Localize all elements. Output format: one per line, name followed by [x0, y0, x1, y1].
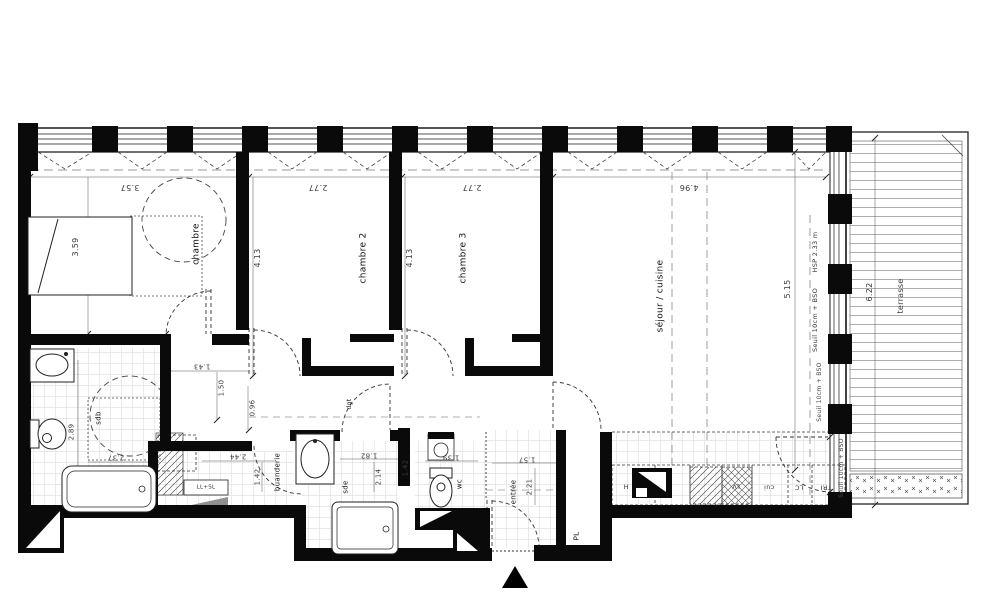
dim-terrasse-length: 6.22 [866, 282, 874, 301]
dim-sejour-width: 4.96 [679, 183, 698, 191]
terrace-deck [846, 132, 968, 504]
note-seuil-a: Seuil 10cm + BSO [812, 288, 819, 352]
dim-entree-height: 2.21 [527, 479, 534, 496]
window-swing-symbols [38, 152, 826, 169]
room-label-sejour-cuisine: séjour / cuisine [657, 260, 666, 333]
dim-buanderie-height: 1.42 [255, 469, 262, 486]
kitchen-label-hotte: H [623, 483, 628, 490]
dim-chambre-width: 3.57 [120, 183, 139, 191]
kitchen-label-cui: cui [764, 484, 774, 491]
room-label-terrasse: terrasse [897, 278, 905, 313]
note-hsp: HSP 2.33 m [812, 232, 819, 273]
room-label-sdb: sdb [96, 411, 103, 424]
note-machine-box: LL+SL [197, 485, 216, 491]
dim-chambre3-width: 2.77 [462, 183, 481, 191]
room-label-wc: wc [457, 479, 464, 489]
dim-wc-height: 1.42 [403, 460, 410, 477]
dim-chambre-height: 3.59 [72, 237, 80, 256]
dim-sde-width: 1.82 [361, 452, 378, 459]
floorplan: chambre chambre 2 chambre 3 séjour / cui… [0, 0, 1000, 609]
dim-sde-height: 2.14 [376, 469, 383, 486]
kitchen-label-lc: LC [795, 484, 804, 491]
note-seuil-b: Seuil 10cm + BSO [817, 362, 823, 422]
room-label-dgt: dgt [347, 399, 353, 410]
entrance-arrow [502, 566, 528, 588]
room-label-chambre: chambre [193, 223, 202, 265]
dim-sejour-height: 5.15 [784, 279, 792, 298]
dim-wc-width: 1.39 [443, 454, 460, 461]
room-label-placard: PL [574, 532, 581, 541]
dim-sdb-width: 2.37 [108, 454, 125, 461]
dim-entree-width: 1.57 [519, 456, 536, 463]
bed [28, 217, 132, 295]
dim-dgt-a: 1.43 [194, 363, 211, 370]
floorplan-linework [0, 0, 1000, 609]
dim-dgt-b: 1.50 [219, 380, 226, 397]
room-label-chambre-2: chambre 2 [360, 233, 369, 284]
dim-sdb-height: 2.89 [69, 424, 76, 441]
dim-chambre2-width: 2.77 [308, 183, 327, 191]
note-seuil-c: Seuil 10cm + BSO [839, 438, 845, 498]
dim-chambre3-height: 4.13 [406, 248, 414, 267]
dim-chambre2-height: 4.13 [254, 248, 262, 267]
room-label-sde: sde [343, 480, 350, 493]
room-label-entree: entrée [511, 480, 518, 505]
room-label-chambre-3: chambre 3 [460, 233, 469, 284]
dim-buanderie-width: 2.44 [230, 453, 247, 460]
dim-dgt-c: 0.96 [250, 400, 257, 417]
room-label-buanderie: buanderie [275, 453, 282, 491]
kitchen-label-tri: TRI [820, 484, 831, 491]
kitchen-label-lv: LV [732, 483, 740, 490]
